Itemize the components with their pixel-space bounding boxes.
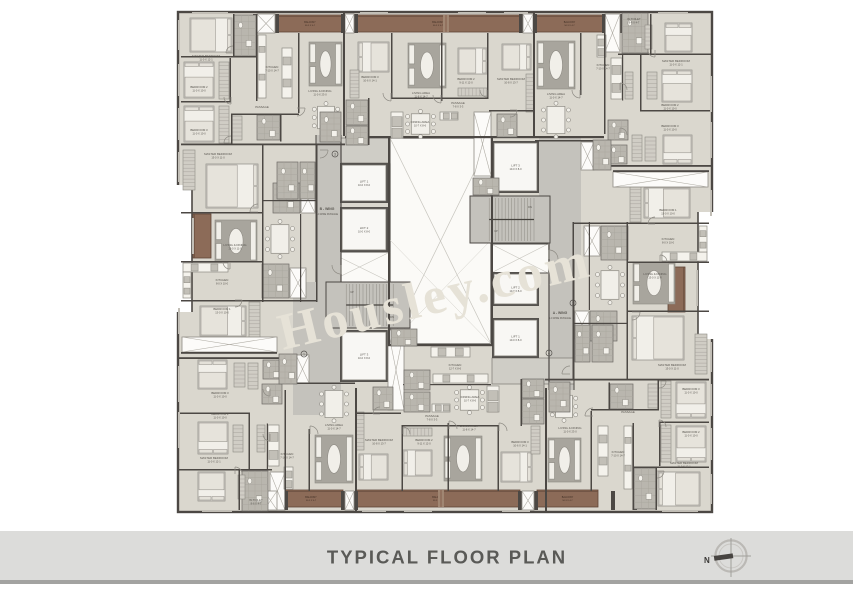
svg-text:11-8 X 14-7: 11-8 X 14-7 (462, 427, 476, 431)
svg-text:LIFT 3: LIFT 3 (360, 353, 369, 357)
svg-text:KITCHEN: KITCHEN (216, 278, 229, 282)
svg-text:MASTER BEDROOM: MASTER BEDROOM (200, 456, 228, 460)
svg-text:7-10 X 14-7: 7-10 X 14-7 (280, 455, 294, 459)
svg-text:9-11 X 12-0: 9-11 X 12-0 (417, 441, 431, 445)
svg-text:56-3 X 4-7: 56-3 X 4-7 (306, 500, 317, 502)
svg-text:BEDROOM 2: BEDROOM 2 (457, 77, 475, 81)
svg-text:9-11 X 12-0: 9-11 X 12-0 (459, 80, 473, 84)
svg-text:LIVING & DINING: LIVING & DINING (308, 89, 332, 93)
svg-text:10-7 X 8-6: 10-7 X 8-6 (464, 398, 477, 402)
svg-text:KITCHEN: KITCHEN (662, 237, 675, 241)
svg-text:3: 3 (334, 153, 336, 157)
svg-text:KITCHEN: KITCHEN (281, 452, 294, 456)
svg-text:MASTER BEDROOM: MASTER BEDROOM (192, 54, 220, 58)
svg-text:LIVING AREA: LIVING AREA (325, 423, 343, 427)
svg-text:LIFT 2: LIFT 2 (360, 226, 369, 230)
svg-text:10-6 X 14-1: 10-6 X 14-1 (363, 78, 377, 82)
svg-text:BALCONY: BALCONY (432, 21, 444, 24)
svg-text:KITCHEN: KITCHEN (266, 65, 279, 69)
svg-text:10-7 X 8-6: 10-7 X 8-6 (414, 123, 427, 127)
svg-text:LIVING & DINING: LIVING & DINING (558, 426, 582, 430)
svg-text:DINING AREA: DINING AREA (461, 395, 480, 399)
svg-text:PASSAGE: PASSAGE (425, 414, 439, 418)
svg-text:56-3 X 4-7: 56-3 X 4-7 (305, 25, 316, 27)
svg-text:BEDROOM 3: BEDROOM 3 (190, 128, 208, 132)
svg-text:BEDROOM 3: BEDROOM 3 (361, 75, 379, 79)
svg-text:MASTER BEDROOM: MASTER BEDROOM (658, 363, 686, 367)
svg-text:BEDROOM 1: BEDROOM 1 (659, 208, 677, 212)
svg-text:KITCHEN: KITCHEN (597, 63, 610, 67)
svg-text:BALCONY: BALCONY (305, 496, 317, 499)
svg-text:N: N (704, 556, 710, 565)
svg-text:11-0 X 10-0: 11-0 X 10-0 (684, 433, 698, 437)
svg-text:10-0 X 8-0: 10-0 X 8-0 (509, 338, 522, 342)
svg-text:8-0 X 10-0: 8-0 X 10-0 (216, 281, 229, 285)
svg-text:LIVING AREA: LIVING AREA (547, 92, 565, 96)
svg-text:8-0 X 10-0: 8-0 X 10-0 (662, 240, 675, 244)
svg-text:LIVING & DINING: LIVING & DINING (223, 243, 247, 247)
svg-text:56-3 X 4-7: 56-3 X 4-7 (564, 25, 575, 27)
svg-text:BEDROOM 1: BEDROOM 1 (213, 307, 231, 311)
svg-text:W.TOILET: W.TOILET (627, 17, 641, 21)
svg-text:11-0 X 12-1: 11-0 X 12-1 (207, 459, 221, 463)
svg-text:7-8 X 3-3: 7-8 X 3-3 (427, 417, 438, 421)
svg-text:11-0 X 10-0: 11-0 X 10-0 (213, 415, 227, 419)
svg-text:7-8 X 3-3: 7-8 X 3-3 (453, 104, 464, 108)
svg-text:8-6 X 4-7: 8-6 X 4-7 (251, 501, 262, 505)
svg-text:MASTER BEDROOM: MASTER BEDROOM (497, 77, 525, 81)
svg-text:MASTER BEDROOM: MASTER BEDROOM (204, 152, 232, 156)
svg-text:13-0 X 11-0: 13-0 X 11-0 (228, 246, 242, 250)
svg-text:PASSAGE: PASSAGE (621, 410, 635, 414)
svg-text:PASSAGE: PASSAGE (255, 105, 269, 109)
svg-text:10-0 X 8-0: 10-0 X 8-0 (509, 167, 522, 171)
svg-text:MASTER BEDROOM: MASTER BEDROOM (365, 438, 393, 442)
svg-text:PASSAGE: PASSAGE (451, 101, 465, 105)
svg-text:13-0 X 11-0: 13-0 X 11-0 (665, 366, 679, 370)
svg-text:10-6 X 14-1: 10-6 X 14-1 (513, 443, 527, 447)
svg-text:LIVING & DINING: LIVING & DINING (643, 272, 667, 276)
svg-text:MASTER BEDROOM: MASTER BEDROOM (662, 59, 690, 63)
svg-text:56-3 X 4-7: 56-3 X 4-7 (562, 500, 573, 502)
svg-text:11-0 X 23-0: 11-0 X 23-0 (563, 429, 577, 433)
svg-text:BALCONY: BALCONY (304, 21, 316, 24)
svg-text:MASTER BEDROOM: MASTER BEDROOM (670, 461, 698, 465)
svg-text:11-0 X 10-0: 11-0 X 10-0 (192, 131, 206, 135)
svg-text:9-0 WIDE PASSAGE: 9-0 WIDE PASSAGE (549, 317, 572, 320)
svg-text:11-0 X 12-1: 11-0 X 12-1 (199, 57, 213, 61)
svg-text:LIFT 1: LIFT 1 (360, 180, 369, 184)
svg-text:11-0 X 10-0: 11-0 X 10-0 (213, 394, 227, 398)
svg-text:11-0 X 10-0: 11-0 X 10-0 (684, 390, 698, 394)
svg-text:10-8 X 13-7: 10-8 X 13-7 (372, 441, 386, 445)
svg-text:7-10 X 14-7: 7-10 X 14-7 (265, 68, 279, 72)
svg-text:11-0 X 12-1: 11-0 X 12-1 (677, 464, 691, 468)
svg-text:LIVING AREA: LIVING AREA (412, 91, 430, 95)
svg-text:BEDROOM 2: BEDROOM 2 (211, 412, 229, 416)
svg-text:9-0 WIDE PASSAGE: 9-0 WIDE PASSAGE (316, 213, 339, 216)
svg-text:10-0 X 8-0: 10-0 X 8-0 (358, 230, 371, 234)
svg-text:B - WING: B - WING (320, 207, 335, 211)
svg-text:W.TOILET: W.TOILET (249, 498, 263, 502)
svg-text:DN: DN (528, 205, 532, 209)
svg-text:BEDROOM 2: BEDROOM 2 (661, 103, 679, 107)
svg-text:TYPICAL FLOOR PLAN: TYPICAL FLOOR PLAN (327, 547, 567, 568)
svg-text:11-0 X 14-7: 11-0 X 14-7 (549, 95, 563, 99)
svg-text:11-0 X 23-0: 11-0 X 23-0 (313, 92, 327, 96)
svg-text:BEDROOM 3: BEDROOM 3 (661, 124, 679, 128)
svg-text:LIFT 1: LIFT 1 (511, 335, 520, 339)
svg-text:BEDROOM 3: BEDROOM 3 (211, 391, 229, 395)
svg-text:11-0 X 10-0: 11-0 X 10-0 (663, 127, 677, 131)
svg-text:12-7 X 8-6: 12-7 X 8-6 (449, 366, 462, 370)
svg-text:BALCONY: BALCONY (564, 21, 576, 24)
svg-text:56-3 X 4-7: 56-3 X 4-7 (433, 25, 444, 27)
svg-text:7-10 X 14-7: 7-10 X 14-7 (596, 66, 610, 70)
svg-text:4: 4 (548, 352, 550, 356)
svg-text:A - WING: A - WING (553, 311, 568, 315)
svg-text:13-0 X 11-0: 13-0 X 11-0 (211, 155, 225, 159)
svg-text:BEDROOM 2: BEDROOM 2 (415, 438, 433, 442)
svg-text:BEDROOM 3: BEDROOM 3 (511, 440, 529, 444)
svg-text:11-8 X 14-7: 11-8 X 14-7 (414, 94, 428, 98)
svg-text:BEDROOM 2: BEDROOM 2 (190, 85, 208, 89)
svg-text:10-8 X 13-7: 10-8 X 13-7 (504, 80, 518, 84)
svg-text:BEDROOM 2: BEDROOM 2 (682, 430, 700, 434)
svg-text:BALCONY: BALCONY (562, 496, 574, 499)
svg-text:LIFT 3: LIFT 3 (511, 164, 520, 168)
svg-text:11-0 X 14-7: 11-0 X 14-7 (327, 426, 341, 430)
svg-text:13-0 X 10-0: 13-0 X 10-0 (215, 310, 229, 314)
svg-text:DINING AREA: DINING AREA (411, 120, 430, 124)
svg-text:LIVING AREA: LIVING AREA (460, 424, 478, 428)
svg-text:BEDROOM 3: BEDROOM 3 (682, 387, 700, 391)
svg-text:11-0 X 10-0: 11-0 X 10-0 (192, 88, 206, 92)
svg-text:11-0 X 10-0: 11-0 X 10-0 (663, 106, 677, 110)
svg-text:KITCHEN: KITCHEN (449, 363, 462, 367)
svg-text:UP: UP (494, 229, 498, 233)
svg-text:10-0 X 8-0: 10-0 X 8-0 (358, 356, 371, 360)
svg-text:13-0 X 10-0: 13-0 X 10-0 (661, 211, 675, 215)
svg-text:8-6 X 4-7: 8-6 X 4-7 (629, 20, 640, 24)
svg-text:7-10 X 14-7: 7-10 X 14-7 (611, 453, 625, 457)
svg-text:KITCHEN: KITCHEN (612, 450, 625, 454)
svg-text:11-0 X 12-1: 11-0 X 12-1 (669, 62, 683, 66)
svg-text:13-0 X 11-0: 13-0 X 11-0 (648, 275, 662, 279)
svg-text:10-0 X 8-0: 10-0 X 8-0 (358, 183, 371, 187)
